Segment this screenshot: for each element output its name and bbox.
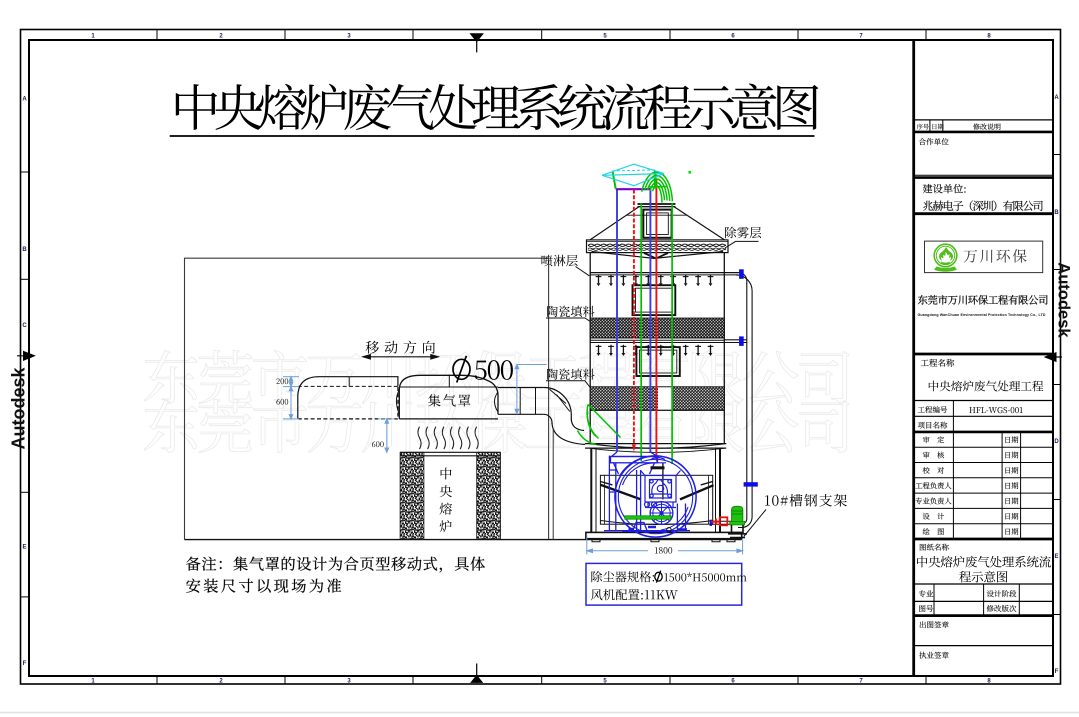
svg-text:A: A xyxy=(22,97,27,103)
svg-text:E: E xyxy=(22,544,26,550)
svg-text:Autodesk: Autodesk xyxy=(9,367,29,450)
svg-text:B: B xyxy=(22,247,27,253)
svg-text:F: F xyxy=(1055,669,1059,675)
svg-text:D: D xyxy=(1054,439,1059,445)
svg-text:A: A xyxy=(1054,95,1059,101)
svg-text:F: F xyxy=(23,661,27,667)
svg-text:E: E xyxy=(1054,554,1058,560)
svg-text:B: B xyxy=(1054,210,1059,216)
svg-text:Guangdong WanChuan Environmen: Guangdong WanChuan Environmental Protect… xyxy=(918,313,1046,317)
svg-text:C: C xyxy=(22,323,27,329)
svg-text:Autodesk: Autodesk xyxy=(1055,262,1073,338)
